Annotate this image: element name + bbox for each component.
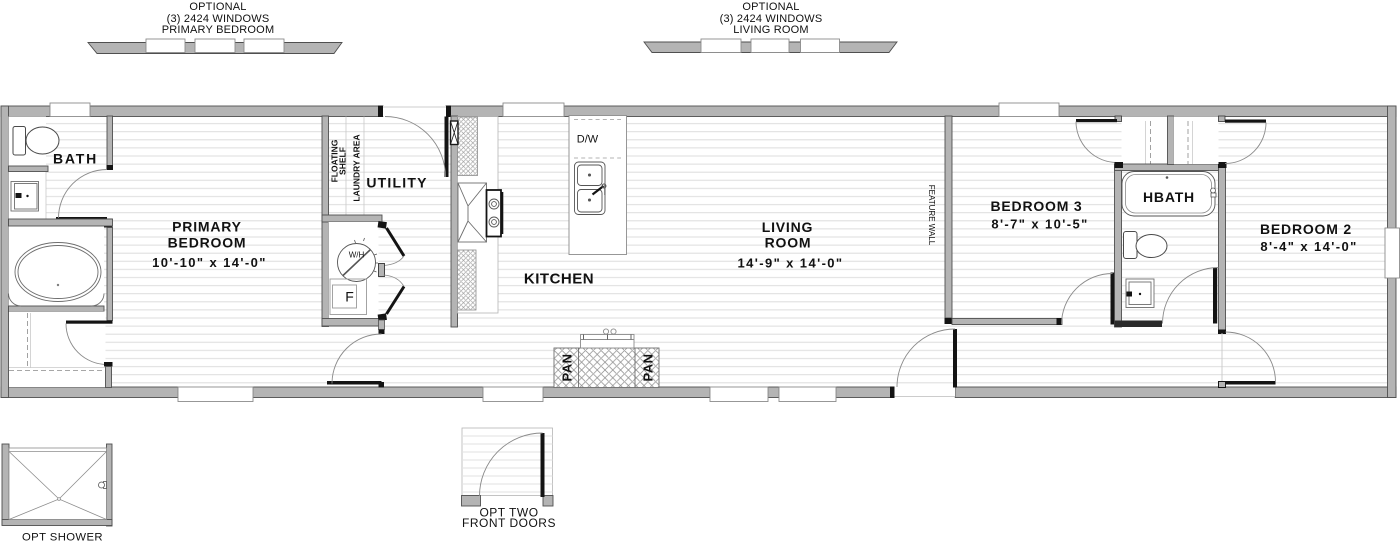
svg-text:F: F [345, 289, 354, 305]
svg-text:BEDROOM: BEDROOM [168, 235, 247, 251]
svg-text:8'-7" x 10'-5": 8'-7" x 10'-5" [991, 216, 1088, 231]
svg-text:OPTIONAL: OPTIONAL [742, 1, 799, 13]
svg-text:PRIMARY BEDROOM: PRIMARY BEDROOM [162, 24, 275, 36]
svg-text:LAUNDRY AREA: LAUNDRY AREA [352, 134, 362, 201]
svg-text:OPT SHOWER: OPT SHOWER [22, 532, 103, 544]
svg-text:BEDROOM 2: BEDROOM 2 [1260, 221, 1352, 237]
svg-text:ROOM: ROOM [765, 235, 812, 251]
svg-text:BEDROOM 3: BEDROOM 3 [991, 198, 1083, 214]
svg-text:D/W: D/W [577, 134, 599, 146]
svg-text:UTILITY: UTILITY [366, 175, 427, 191]
svg-text:8'-4" x 14'-0": 8'-4" x 14'-0" [1260, 239, 1357, 254]
svg-text:PAN: PAN [560, 354, 575, 382]
svg-text:14'-9" x 14'-0": 14'-9" x 14'-0" [737, 255, 843, 270]
svg-text:HBATH: HBATH [1143, 189, 1195, 205]
svg-text:KITCHEN: KITCHEN [524, 271, 594, 288]
svg-text:BATH: BATH [53, 150, 98, 166]
svg-text:OPTIONAL: OPTIONAL [189, 1, 246, 13]
svg-text:PRIMARY: PRIMARY [172, 219, 242, 235]
svg-text:W/H: W/H [349, 251, 365, 260]
svg-text:LIVING: LIVING [762, 219, 813, 235]
svg-text:(3) 2424 WINDOWS: (3) 2424 WINDOWS [167, 13, 270, 25]
svg-text:10'-10" x 14'-0": 10'-10" x 14'-0" [152, 255, 267, 270]
svg-text:FRONT DOORS: FRONT DOORS [462, 516, 556, 530]
svg-text:(3) 2424 WINDOWS: (3) 2424 WINDOWS [720, 13, 823, 25]
svg-text:SHELF: SHELF [338, 147, 348, 175]
svg-text:FEATURE WALL: FEATURE WALL [927, 185, 936, 246]
svg-text:PAN: PAN [641, 354, 656, 382]
svg-text:LIVING ROOM: LIVING ROOM [733, 24, 809, 36]
